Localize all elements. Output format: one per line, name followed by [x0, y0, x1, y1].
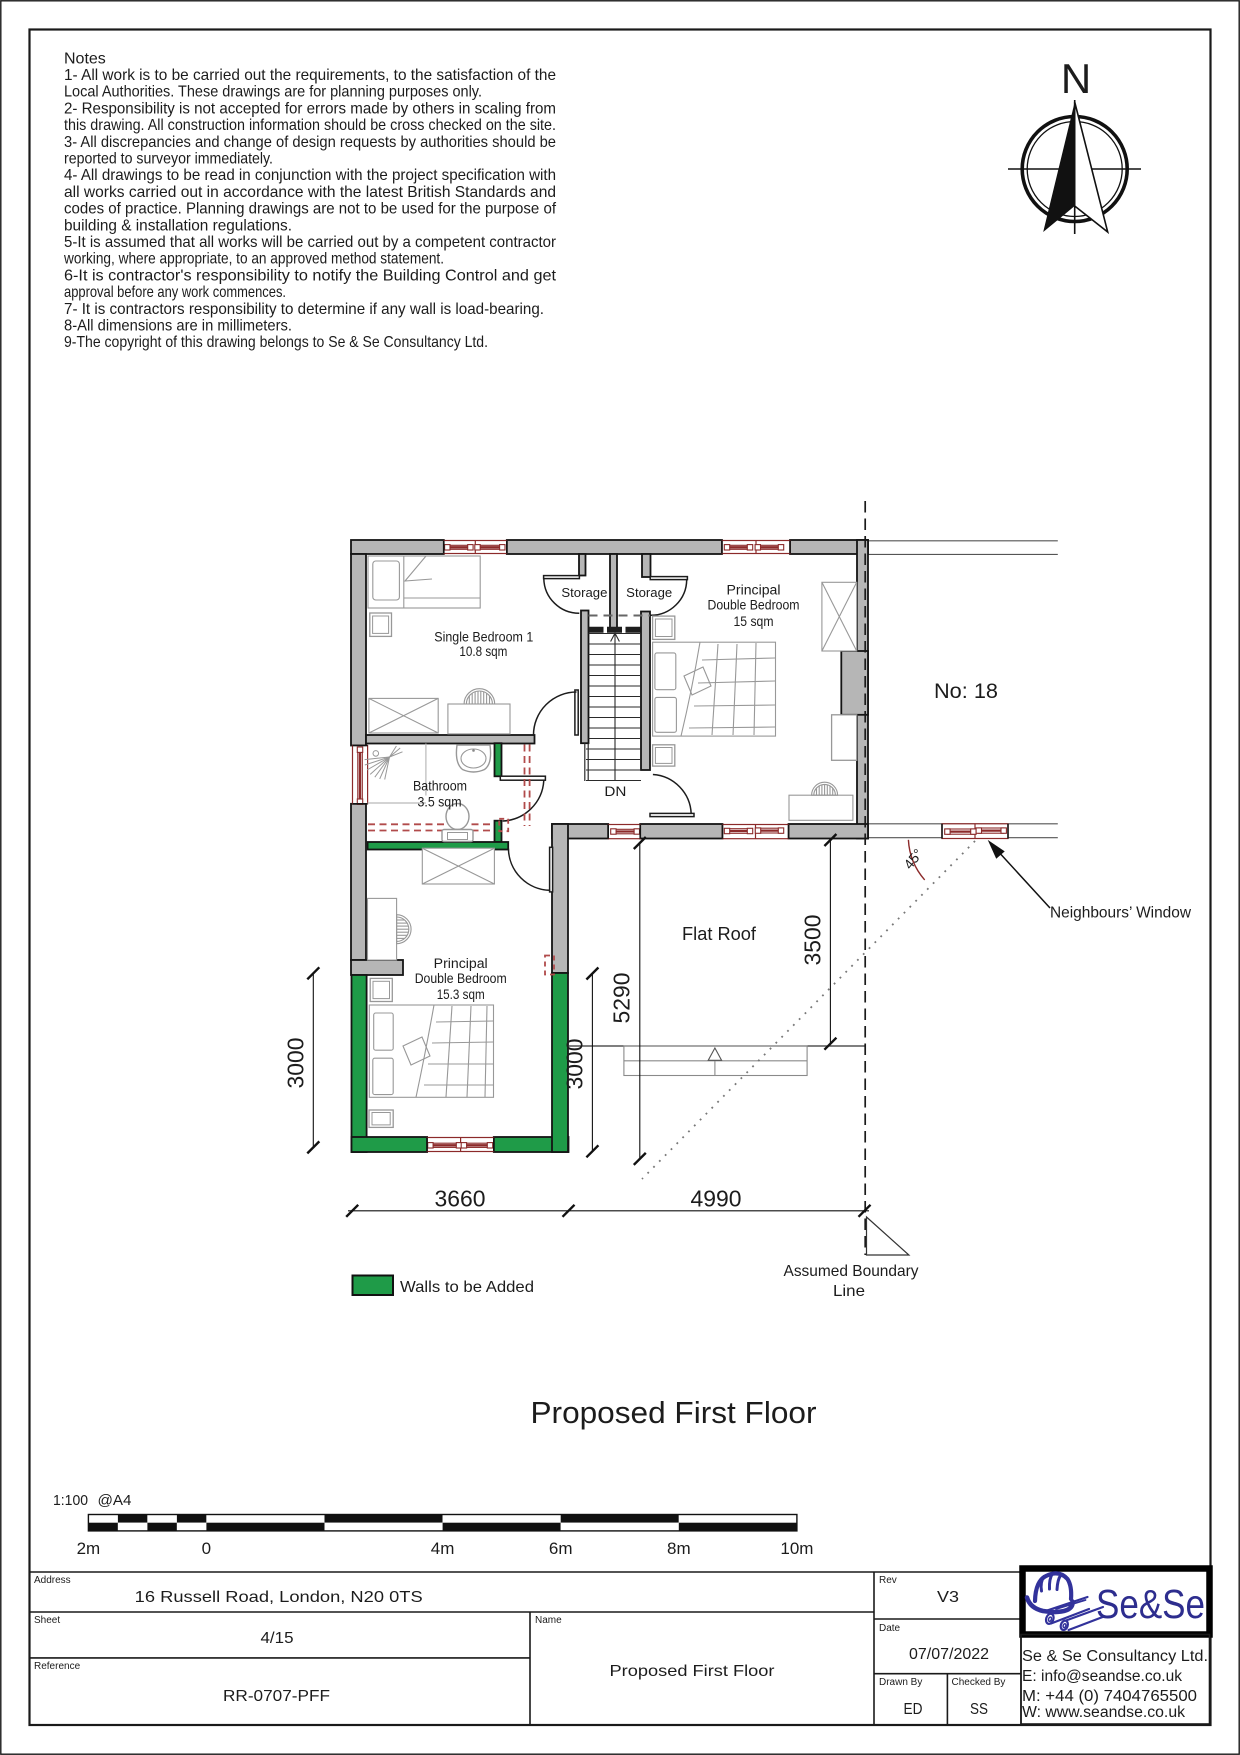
svg-text:approval before any work comme: approval before any work commences.	[64, 284, 286, 301]
svg-text:Assumed Boundary: Assumed Boundary	[784, 1263, 919, 1280]
svg-text:9-The copyright of this drawin: 9-The copyright of this drawing belongs …	[64, 334, 488, 351]
svg-text:0: 0	[202, 1539, 211, 1558]
svg-text:1- All work is to be carried o: 1- All work is to be carried out the req…	[64, 67, 556, 84]
svg-text:Address: Address	[34, 1575, 71, 1586]
svg-text:Proposed First Floor: Proposed First Floor	[610, 1663, 776, 1680]
svg-text:Neighbours’ Window: Neighbours’ Window	[1050, 905, 1191, 922]
svg-text:Name: Name	[535, 1615, 562, 1626]
svg-text:7- It is contractors responsib: 7- It is contractors responsibility to d…	[64, 301, 544, 318]
svg-text:@A4: @A4	[98, 1492, 132, 1509]
svg-text:6m: 6m	[549, 1539, 573, 1558]
svg-text:10m: 10m	[780, 1539, 813, 1558]
svg-text:Bathroom: Bathroom	[413, 779, 467, 794]
svg-text:W: www.seandse.co.uk: W: www.seandse.co.uk	[1022, 1704, 1185, 1721]
svg-text:10.8 sqm: 10.8 sqm	[459, 644, 507, 659]
svg-text:No: 18: No: 18	[934, 680, 998, 703]
svg-text:15.3 sqm: 15.3 sqm	[437, 987, 485, 1002]
svg-text:this drawing. All construction: this drawing. All construction informati…	[64, 117, 556, 134]
svg-text:16 Russell Road, London, N20 0: 16 Russell Road, London, N20 0TS	[135, 1589, 423, 1606]
svg-text:ED: ED	[904, 1701, 923, 1718]
svg-text:Walls to be Added: Walls to be Added	[400, 1279, 534, 1296]
svg-text:Se & Se Consultancy Ltd.: Se & Se Consultancy Ltd.	[1022, 1648, 1208, 1665]
svg-text:V3: V3	[937, 1589, 959, 1606]
svg-text:Drawn By: Drawn By	[879, 1677, 922, 1688]
svg-text:5290: 5290	[609, 973, 635, 1024]
svg-text:4m: 4m	[431, 1539, 455, 1558]
svg-text:4/15: 4/15	[261, 1630, 294, 1647]
svg-text:Flat Roof: Flat Roof	[682, 923, 757, 944]
svg-text:3.5 sqm: 3.5 sqm	[418, 795, 462, 810]
svg-text:Double Bedroom: Double Bedroom	[415, 971, 507, 986]
svg-text:Date: Date	[879, 1623, 901, 1634]
svg-text:Single Bedroom 1: Single Bedroom 1	[434, 630, 533, 645]
svg-text:07/07/2022: 07/07/2022	[909, 1646, 989, 1663]
svg-text:building & installation regula: building & installation regulations.	[64, 217, 292, 234]
svg-text:Sheet: Sheet	[34, 1615, 60, 1626]
svg-text:M: +44 (0) 7404765500: M: +44 (0) 7404765500	[1022, 1688, 1197, 1705]
svg-text:RR-0707-PFF: RR-0707-PFF	[223, 1688, 330, 1705]
svg-text:6-It is contractor's responsib: 6-It is contractor's responsibility to n…	[64, 267, 557, 284]
svg-text:Se&Se: Se&Se	[1096, 1581, 1205, 1627]
svg-text:SS: SS	[970, 1701, 988, 1718]
svg-text:5-It is assumed that all works: 5-It is assumed that all works will be c…	[64, 234, 557, 251]
svg-text:2- Responsibility is not accep: 2- Responsibility is not accepted for er…	[64, 100, 556, 117]
svg-text:working, where appropriate, to: working, where appropriate, to an approv…	[63, 251, 444, 268]
svg-text:Storage: Storage	[626, 586, 672, 600]
svg-text:Checked By: Checked By	[952, 1677, 1006, 1688]
svg-text:8m: 8m	[667, 1539, 691, 1558]
svg-text:3500: 3500	[800, 915, 826, 966]
svg-text:Storage: Storage	[561, 586, 607, 600]
svg-text:Principal: Principal	[434, 956, 488, 971]
svg-text:Notes: Notes	[64, 50, 106, 67]
svg-text:all works carried out in accor: all works carried out in accordance with…	[64, 184, 556, 201]
svg-text:Reference: Reference	[34, 1661, 81, 1672]
svg-text:reported to surveyor immediate: reported to surveyor immediately.	[64, 151, 273, 168]
svg-text:15 sqm: 15 sqm	[734, 614, 774, 629]
svg-text:Local Authorities. These drawi: Local Authorities. These drawings are fo…	[64, 84, 482, 101]
svg-text:Proposed First Floor: Proposed First Floor	[531, 1395, 817, 1430]
svg-text:codes of practice. Planning dr: codes of practice. Planning drawings are…	[64, 201, 557, 218]
svg-text:Double Bedroom: Double Bedroom	[708, 598, 800, 613]
svg-text:Line: Line	[833, 1283, 865, 1300]
svg-text:N: N	[1061, 55, 1091, 102]
svg-text:4990: 4990	[691, 1186, 742, 1212]
svg-text:DN: DN	[604, 784, 626, 799]
svg-text:3000: 3000	[283, 1038, 309, 1089]
svg-text:Rev: Rev	[879, 1575, 897, 1586]
svg-text:E: info@seandse.co.uk: E: info@seandse.co.uk	[1022, 1668, 1182, 1685]
svg-text:3000: 3000	[562, 1039, 588, 1090]
svg-text:Principal: Principal	[727, 583, 781, 598]
svg-text:3- All discrepancies and chang: 3- All discrepancies and change of desig…	[64, 134, 556, 151]
svg-text:3660: 3660	[435, 1186, 486, 1212]
svg-text:1:100: 1:100	[53, 1492, 88, 1509]
svg-text:2m: 2m	[77, 1539, 101, 1558]
svg-text:8-All dimensions are in millim: 8-All dimensions are in millimeters.	[64, 318, 292, 335]
svg-text:4- All drawings to be read in: 4- All drawings to be read in conjunctio…	[64, 167, 556, 184]
